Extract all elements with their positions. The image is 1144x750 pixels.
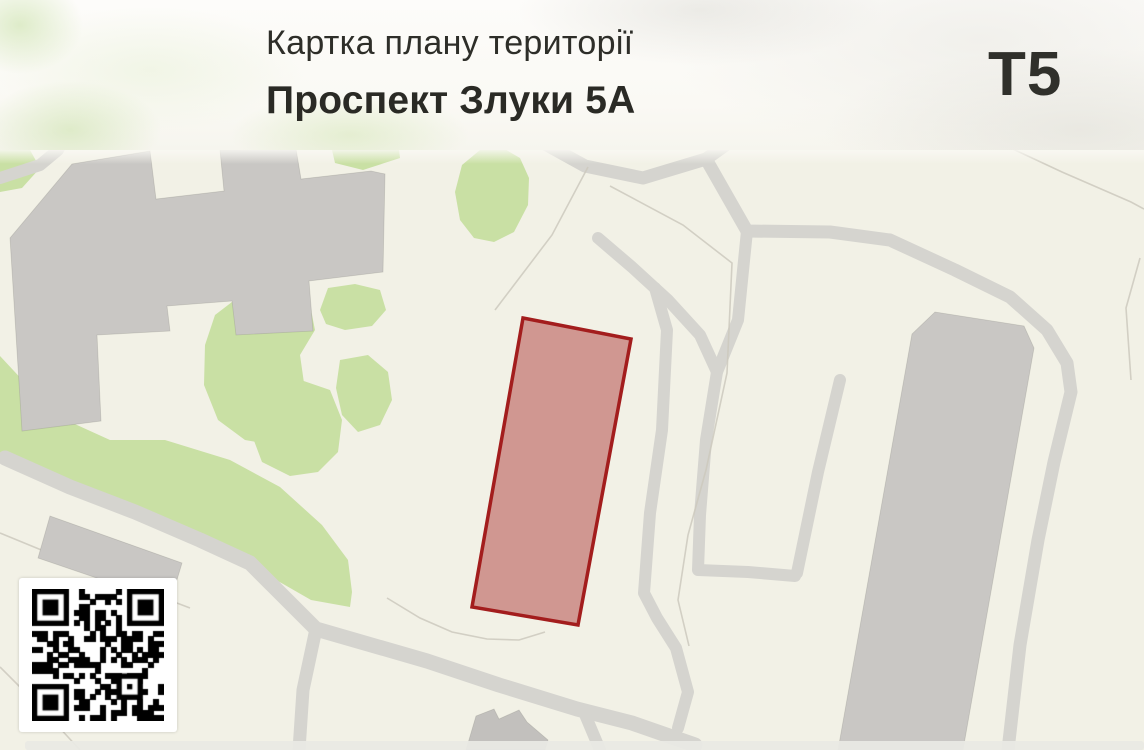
bottom-road-strip <box>25 741 1144 750</box>
plan-card: Картка плану території Проспект Злуки 5А… <box>0 0 1144 750</box>
zone-badge: Т5 <box>988 44 1062 106</box>
green-area <box>248 378 342 476</box>
address-subtitle: Проспект Злуки 5А <box>266 81 636 120</box>
qr-code <box>32 589 164 721</box>
header <box>0 0 1144 150</box>
page-title: Картка плану території <box>266 26 633 60</box>
qr-code-panel <box>19 578 177 732</box>
